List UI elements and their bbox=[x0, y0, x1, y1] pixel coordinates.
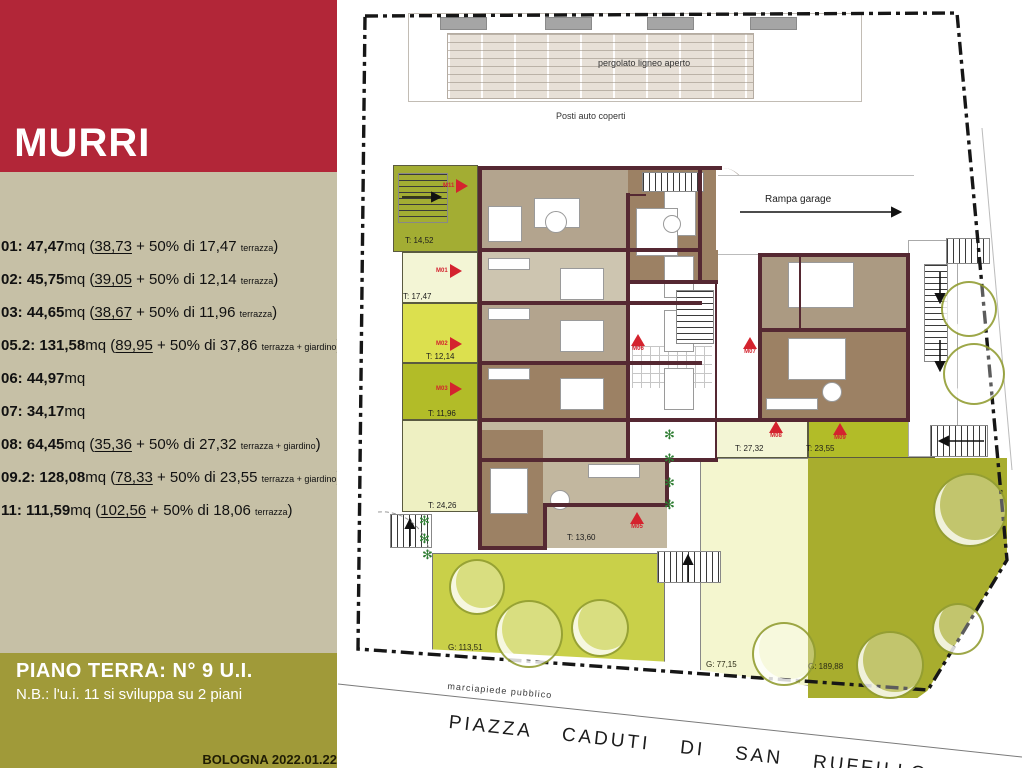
unit-marker-m05: M05 bbox=[630, 512, 644, 530]
unit-marker-m02: M02 bbox=[436, 337, 462, 351]
unit-marker-m09: M09 bbox=[833, 423, 847, 441]
parking-label: pergolato ligneo aperto bbox=[598, 58, 690, 68]
plant-icon: ✻ bbox=[664, 476, 675, 489]
unit-marker-m08: M08 bbox=[769, 421, 783, 439]
area-label: T: 14,52 bbox=[405, 236, 433, 245]
marker-triangle-icon bbox=[630, 512, 644, 524]
unit-marker-m03: M03 bbox=[436, 382, 462, 396]
tree-icon bbox=[449, 559, 505, 615]
marker-triangle-icon bbox=[743, 337, 757, 349]
plant-icon: ✻ bbox=[422, 548, 433, 561]
tree-icon bbox=[752, 622, 816, 686]
area-label: G: 113,51 bbox=[448, 643, 483, 652]
tree-icon bbox=[856, 631, 924, 699]
area-label: T: 24,26 bbox=[428, 501, 456, 510]
parking-label: Posti auto coperti bbox=[556, 111, 626, 121]
plant-icon: ✻ bbox=[419, 532, 430, 545]
plant-icon: ✻ bbox=[664, 452, 675, 465]
area-label: T: 17,47 bbox=[403, 292, 431, 301]
unit-marker-m07: M07 bbox=[743, 337, 757, 355]
marker-triangle-icon bbox=[631, 334, 645, 346]
tree-icon bbox=[932, 603, 984, 655]
marker-triangle-icon bbox=[769, 421, 783, 433]
plant-icon: ✻ bbox=[664, 498, 675, 511]
marker-triangle-icon bbox=[833, 423, 847, 435]
plant-icon: ✻ bbox=[664, 428, 675, 441]
area-label: T: 13,60 bbox=[567, 533, 595, 542]
marker-triangle-icon bbox=[450, 382, 462, 396]
floor-plan-page: O MURRI 01: 47,47mq (38,73 + 50% di 17,4… bbox=[0, 0, 1024, 768]
tree-icon bbox=[941, 281, 997, 337]
marker-triangle-icon bbox=[456, 179, 468, 193]
area-label: T: 11,96 bbox=[428, 409, 456, 418]
marker-triangle-icon bbox=[450, 337, 462, 351]
area-label: T: 12,14 bbox=[426, 352, 454, 361]
area-label: T: 23,55 bbox=[806, 444, 834, 453]
tree-icon bbox=[571, 599, 629, 657]
ramp-label: Rampa garage bbox=[765, 194, 831, 205]
tree-icon bbox=[933, 473, 1007, 547]
label-layer: pergolato ligneo apertoPosti auto copert… bbox=[0, 0, 1024, 768]
unit-marker-m06: M06 bbox=[631, 334, 645, 352]
marker-triangle-icon bbox=[450, 264, 462, 278]
unit-marker-m11: M11 bbox=[443, 179, 468, 193]
area-label: G: 77,15 bbox=[706, 660, 737, 669]
tree-icon bbox=[943, 343, 1005, 405]
plant-icon: ✻ bbox=[419, 514, 430, 527]
area-label: T: 27,32 bbox=[735, 444, 763, 453]
tree-icon bbox=[495, 600, 563, 668]
unit-marker-m01: M01 bbox=[436, 264, 462, 278]
